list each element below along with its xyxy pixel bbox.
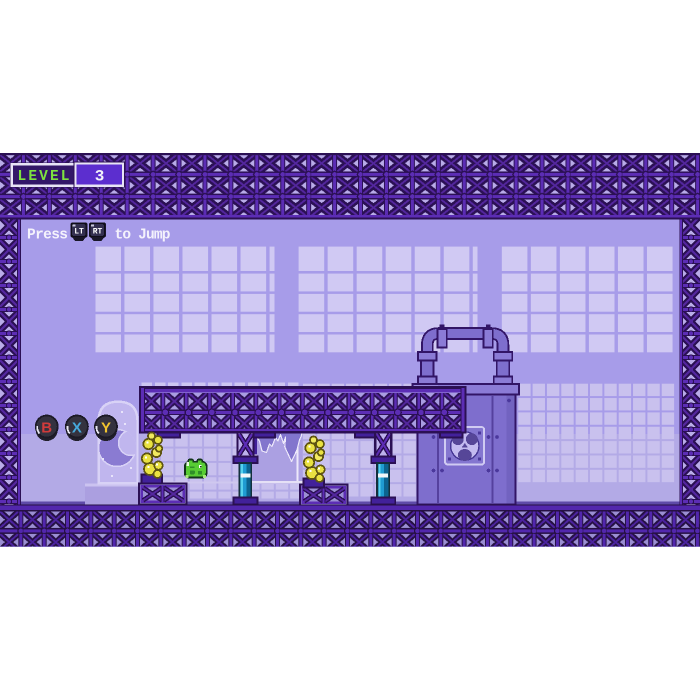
svg-text:B: B xyxy=(41,420,52,437)
svg-text:Y: Y xyxy=(101,420,111,437)
svg-text:Press: Press xyxy=(27,228,68,244)
svg-text:LEVEL: LEVEL xyxy=(18,169,70,185)
svg-text:to Jump: to Jump xyxy=(115,228,171,244)
svg-text:LT: LT xyxy=(74,228,84,237)
svg-text:X: X xyxy=(72,420,82,437)
svg-text:3: 3 xyxy=(95,168,105,186)
svg-text:RT: RT xyxy=(93,228,103,237)
